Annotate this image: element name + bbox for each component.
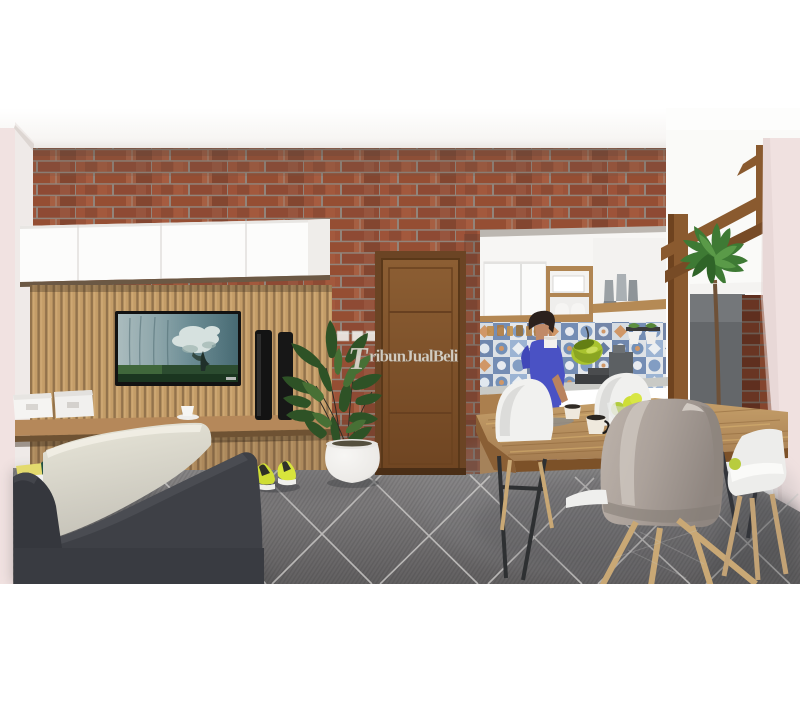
svg-text:T: T (348, 340, 369, 376)
svg-text:ribunJualBeli: ribunJualBeli (369, 347, 459, 366)
